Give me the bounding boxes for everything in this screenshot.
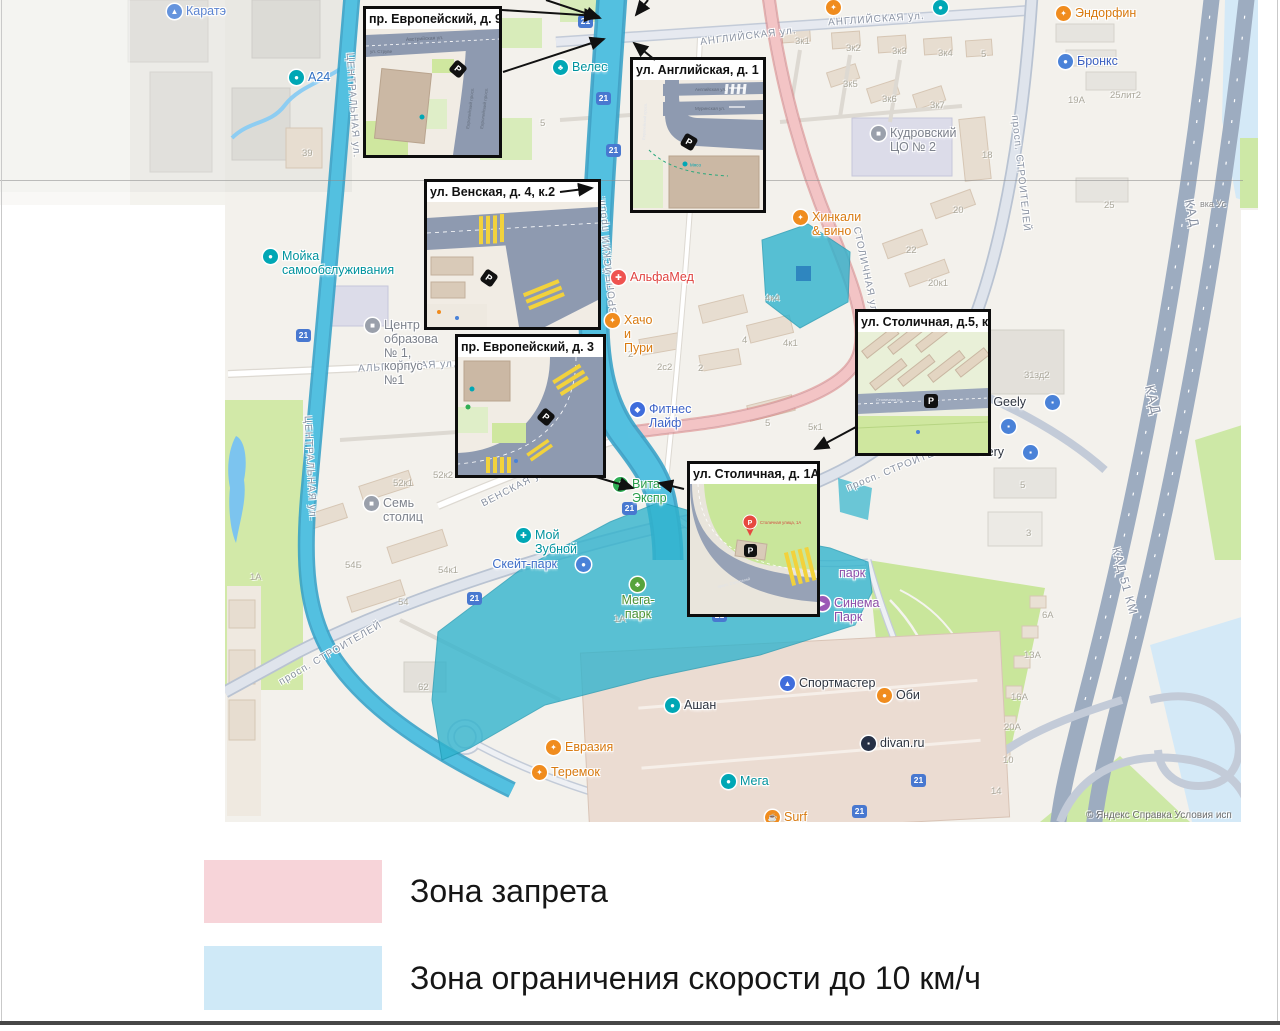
map-attribution[interactable]: © Яндекс Справка Условия исп [1086,810,1232,821]
legend-swatch-speed-limit [204,946,382,1010]
inset-minimap: P [427,202,598,327]
inset-minimap: Р Столичная улица, 1А P просп. Строителе… [690,484,817,614]
inset-angliyskaya-1: ул. Английская, д. 1 Мясо Английская ул.… [630,57,766,213]
inset-title: ул. Венская, д. 4, к.2 [427,182,598,202]
faded-overlay-2 [130,0,225,205]
inset-evropeysky-9k2: пр. Европейский, д. 9,к. 2 Австрийская у… [363,6,502,158]
map-attribution-right[interactable]: вка Ус [1200,199,1226,209]
inset-minimap: P [458,357,603,475]
legend-swatch-restricted [204,860,382,923]
svg-text:Столичная улица, 1А: Столичная улица, 1А [760,520,801,525]
inset-stolichnaya-1a: ул. Столичная, д. 1А Р Столичная улица, … [687,461,820,617]
svg-text:Р: Р [748,520,753,527]
page-right-border [1277,0,1278,1021]
faded-overlay [0,0,130,205]
inset-venskaya-4k2: ул. Венская, д. 4, к.2 P [424,179,601,330]
legend-label-restricted: Зона запрета [410,860,608,923]
svg-text:Столичная ул.: Столичная ул. [876,397,903,402]
inset-evropeysky-3: пр. Европейский, д. 3 P [455,334,606,478]
svg-text:Мясо: Мясо [690,163,701,168]
inset-title: пр. Европейский, д. 3 [458,337,603,357]
inset-stolichnaya-5k1: ул. Столичная, д.5, к.1 Столичная ул. P [855,309,991,456]
inset-title: ул. Столичная, д. 1А [690,464,817,484]
page-bottom-bar [0,1021,1280,1025]
inset-minimap: Австрийская ул. ул. Струве Европейский п… [366,29,499,155]
svg-text:Муринская ул.: Муринская ул. [695,106,725,111]
inset-minimap: Столичная ул. P [858,332,988,453]
inset-title: ул. Английская, д. 1 [633,60,763,80]
svg-text:Английская ул.: Английская ул. [695,86,726,92]
svg-text:P: P [748,546,754,556]
inset-title: ул. Столичная, д.5, к.1 [858,312,988,332]
right-white-margin [1241,210,1258,822]
screenshot-seam [0,180,1243,181]
svg-text:P: P [928,396,934,406]
page: АНГЛИЙСКАЯ ул.АНГЛИЙСКАЯ ул.ЦЕНТРАЛЬНАЯ … [0,0,1280,1031]
left-white-margin [0,205,225,822]
page-left-border [1,0,2,1021]
legend-label-speed-limit: Зона ограничения скорости до 10 км/ч [410,946,981,1010]
inset-minimap: Мясо Английская ул. Муринская ул. Европе… [633,80,763,210]
inset-title: пр. Европейский, д. 9,к. 2 [366,9,499,29]
svg-text:ул. Струве: ул. Струве [370,49,393,54]
